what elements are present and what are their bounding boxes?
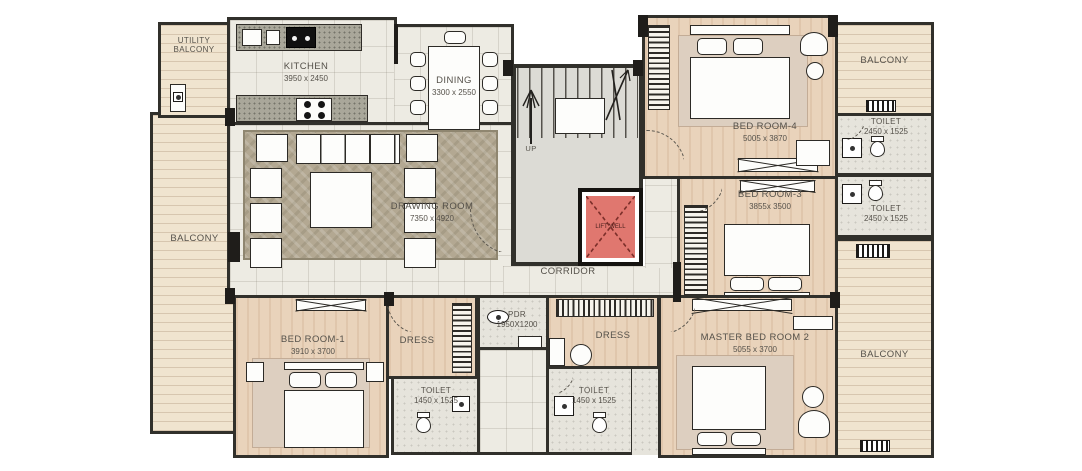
dining-chair — [482, 100, 498, 115]
toilet-tr-label: TOILET 2450 x 1525 — [842, 117, 930, 136]
bedroom4-label: BED ROOM-4 5005 x 3870 — [695, 122, 835, 143]
master-bed-pillow — [731, 432, 761, 446]
dress2-dresser — [549, 338, 565, 366]
master-dresser — [692, 299, 792, 311]
master-bed-mattress — [692, 366, 766, 430]
dining-chair — [444, 31, 466, 44]
bedroom1-label: BED ROOM-1 3910 x 3700 — [243, 335, 383, 356]
sofa-corner-table — [406, 134, 438, 162]
toilet2-label: TOILET 1450 x 1525 — [552, 386, 636, 405]
toilet-tr-basin-icon — [842, 138, 862, 158]
armchair — [250, 168, 282, 198]
balcony-top-right-label: BALCONY — [835, 56, 934, 67]
bed3-mattress — [724, 224, 810, 276]
passage — [477, 350, 549, 455]
toilet2-niche — [632, 369, 658, 455]
toilet-mr-label: TOILET 2450 x 1525 — [842, 204, 930, 223]
bedroom4-desk — [796, 140, 830, 166]
kitchen-hob-burners-icon — [304, 101, 311, 108]
pdr-cabinet — [518, 336, 542, 348]
wall-column — [503, 60, 513, 76]
master-bed-pillow — [697, 432, 727, 446]
bed4-mattress — [690, 57, 790, 119]
master-desk — [793, 316, 833, 330]
toilet-mr-wc-icon — [868, 180, 883, 202]
armchair — [250, 203, 282, 233]
wall-column — [673, 262, 681, 302]
armchair — [404, 238, 436, 268]
bed3-pillow — [730, 277, 764, 291]
bedroom1-dresser — [296, 299, 366, 311]
dress2-label: DRESS — [566, 331, 660, 342]
kitchen-hob-icon — [296, 98, 332, 121]
toilet-tr-wc-icon — [870, 136, 885, 158]
master-stool — [802, 386, 824, 408]
balcony-br-grill-icon — [856, 244, 890, 258]
door-arc-master — [661, 298, 695, 332]
bedroom4-stool — [806, 62, 824, 80]
drawing-room-label: DRAWING ROOM 7350 x 4920 — [372, 202, 492, 223]
bedroom4-chair — [800, 32, 828, 56]
wall-column — [828, 15, 838, 37]
toilet2-wc-icon — [592, 412, 607, 434]
balcony-bottom-right-label: BALCONY — [835, 350, 934, 361]
kitchen-label: KITCHEN 3950 x 2450 — [236, 62, 376, 83]
bed1-pillow — [289, 372, 321, 388]
sofa — [296, 134, 400, 164]
wall-column — [633, 60, 643, 76]
wall-column — [225, 288, 235, 304]
dress1-wardrobe — [452, 303, 472, 373]
kitchen-sink-icon — [242, 29, 262, 46]
bed1-mattress — [284, 390, 364, 448]
door-arc-bedroom4 — [646, 130, 684, 168]
utility-balcony-label: UTILITY BALCONY — [158, 36, 230, 54]
bed1-pillow — [325, 372, 357, 388]
bedroom1-side-table — [366, 362, 384, 382]
dress2-stool — [570, 344, 592, 366]
bed4-pillow — [697, 38, 727, 55]
dress2-wardrobe — [556, 299, 654, 317]
bed1-headboard — [284, 362, 364, 370]
bedroom3-wardrobe — [684, 205, 708, 295]
wall-column — [638, 15, 648, 37]
wall-column — [225, 108, 235, 126]
pdr-label: PDR 1950X1200 — [486, 310, 548, 329]
sofa-corner-table — [256, 134, 288, 162]
stair-up-arrow-icon — [518, 86, 544, 148]
dining-chair — [482, 52, 498, 67]
bedroom1-side-table — [246, 362, 264, 382]
bed4-headboard — [690, 25, 790, 35]
wall-column — [384, 292, 394, 306]
coffee-table — [310, 172, 372, 228]
balcony-left-label: BALCONY — [150, 234, 239, 245]
utility-tap-icon — [173, 92, 183, 102]
toilet1-wc-icon — [416, 412, 431, 434]
wall-column — [830, 292, 840, 308]
balcony-br-grill2-icon — [860, 440, 890, 452]
kitchen-stove-icon — [286, 27, 316, 48]
armchair — [250, 238, 282, 268]
bedroom3-label: BED ROOM-3 3855x 3500 — [700, 190, 840, 211]
room-balcony-left — [150, 112, 239, 434]
master-chair — [798, 410, 830, 438]
room-balcony-bottom-right — [835, 238, 934, 458]
master-bedroom-label: MASTER BED ROOM 2 5055 x 3700 — [675, 333, 835, 354]
dining-chair — [410, 100, 426, 115]
corridor-label: CORRIDOR — [508, 267, 628, 278]
lift-shaft: LIFT WELL — [586, 196, 635, 258]
wall-stub-dining — [394, 24, 398, 64]
bed3-pillow — [768, 277, 802, 291]
balcony-tr-grill-icon — [866, 100, 896, 112]
dress1-label: DRESS — [386, 336, 448, 347]
bedroom4-wardrobe — [648, 25, 670, 110]
armchair — [404, 168, 436, 198]
master-bed-headboard — [692, 448, 766, 455]
toilet-mr-basin-icon — [842, 184, 862, 204]
dining-label: DINING 3300 x 2550 — [394, 76, 514, 97]
lift-well: LIFT WELL — [578, 188, 643, 266]
lift-well-label: LIFT WELL — [586, 196, 635, 258]
bed4-pillow — [733, 38, 763, 55]
kitchen-sink2-icon — [266, 30, 280, 45]
dining-chair — [410, 52, 426, 67]
stairs-up-label: UP — [518, 145, 544, 154]
floor-plan: BALCONY UTILITY BALCONY KITCHEN 3950 x 2… — [0, 0, 1082, 471]
toilet1-label: TOILET 1450 x 1525 — [396, 386, 476, 405]
